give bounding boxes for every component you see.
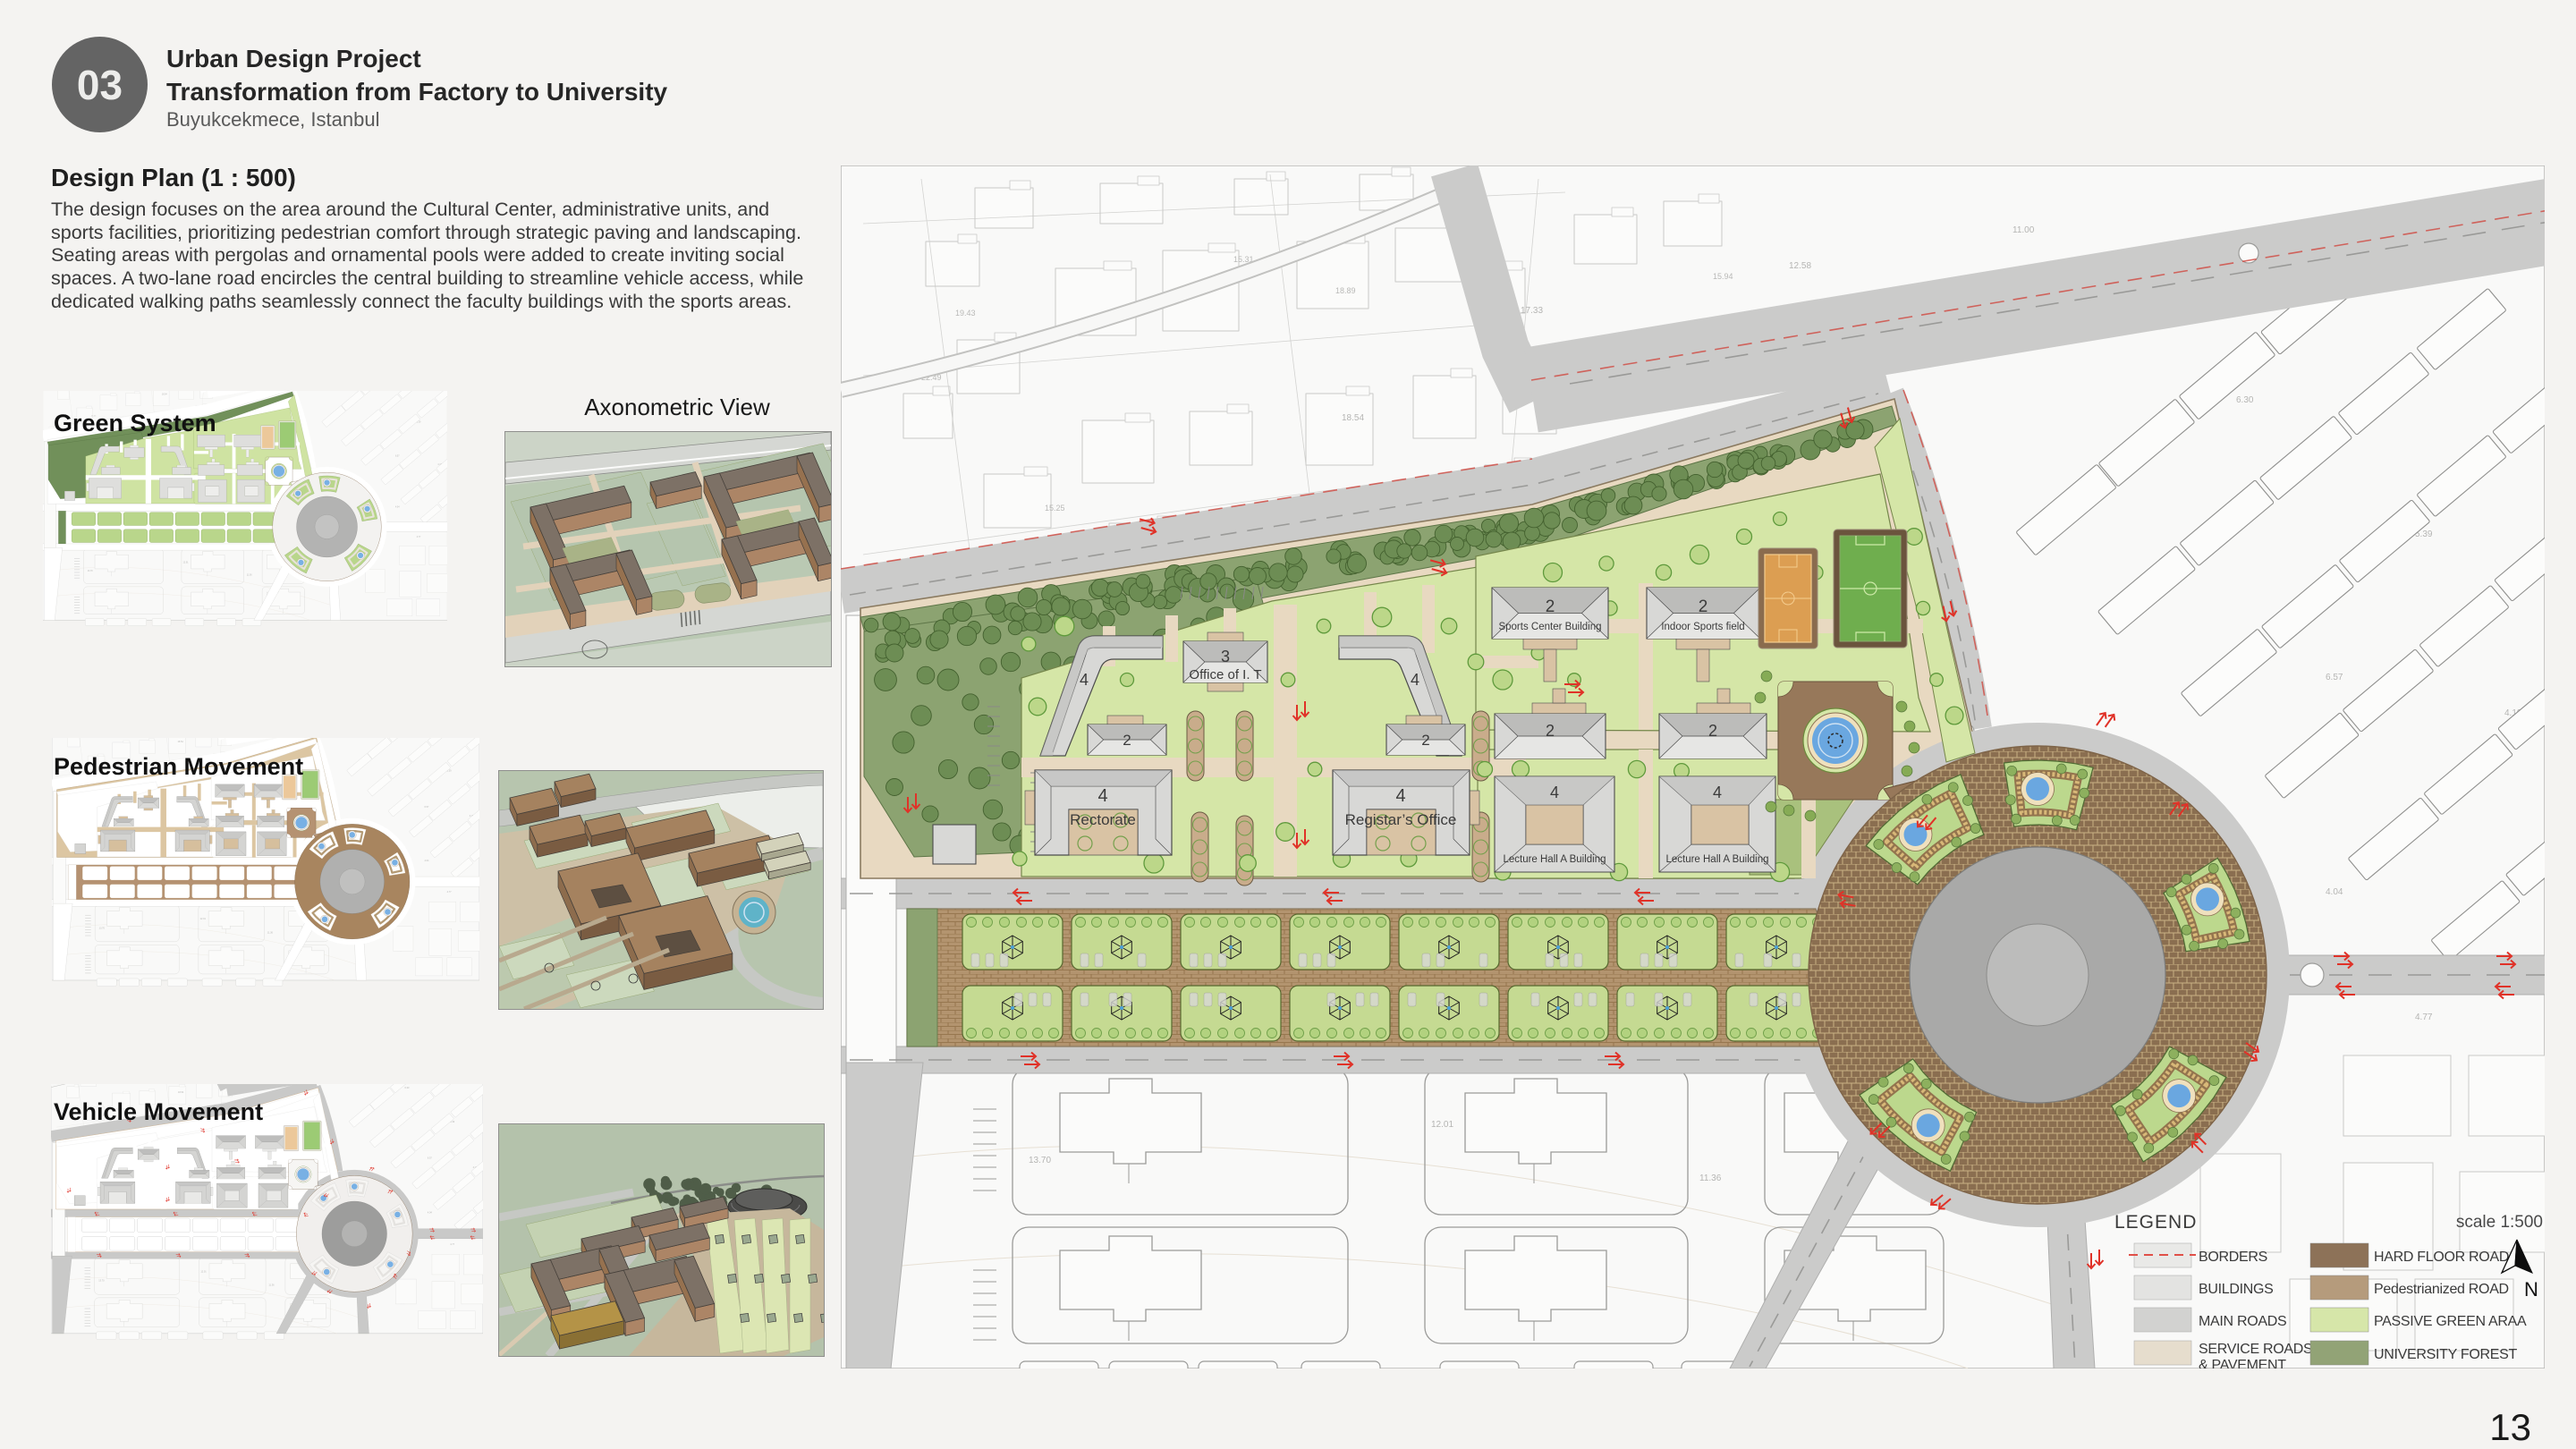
svg-text:18.54: 18.54: [178, 741, 184, 743]
svg-text:12.01: 12.01: [200, 918, 207, 920]
svg-text:6.30: 6.30: [374, 391, 378, 392]
svg-text:13.70: 13.70: [1029, 1156, 1051, 1165]
svg-text:4.04: 4.04: [395, 506, 400, 509]
svg-text:4.77: 4.77: [447, 891, 452, 894]
svg-text:18.54: 18.54: [1342, 413, 1364, 423]
svg-text:scale 1:500: scale 1:500: [2456, 1213, 2543, 1232]
svg-text:4: 4: [1550, 784, 1559, 801]
svg-text:UNIVERSITY FOREST: UNIVERSITY FOREST: [2374, 1347, 2517, 1362]
svg-text:19.43: 19.43: [955, 309, 976, 318]
svg-text:2: 2: [1546, 722, 1555, 740]
svg-text:4: 4: [1713, 784, 1722, 801]
svg-text:11.36: 11.36: [268, 1284, 275, 1287]
svg-text:4.04: 4.04: [428, 1212, 432, 1215]
svg-text:6.57: 6.57: [428, 1157, 432, 1160]
svg-text:& PAVEMENT: & PAVEMENT: [2199, 1358, 2286, 1368]
svg-text:12.58: 12.58: [1789, 261, 1811, 271]
svg-text:BORDERS: BORDERS: [2199, 1250, 2267, 1265]
svg-text:12.01: 12.01: [200, 1270, 207, 1273]
svg-text:PASSIVE GREEN ARAA: PASSIVE GREEN ARAA: [2374, 1314, 2527, 1329]
svg-text:6.30: 6.30: [2236, 395, 2254, 405]
svg-text:12.01: 12.01: [183, 561, 190, 563]
svg-text:11.36: 11.36: [267, 931, 274, 934]
svg-text:4.77: 4.77: [417, 536, 421, 538]
svg-text:6.57: 6.57: [395, 455, 400, 458]
svg-text:2: 2: [1699, 597, 1708, 616]
svg-text:Indoor Sports field: Indoor Sports field: [1661, 622, 1744, 632]
svg-text:Pedestrianized ROAD: Pedestrianized ROAD: [2374, 1282, 2509, 1297]
svg-text:2: 2: [1421, 732, 1429, 749]
svg-text:15.94: 15.94: [1713, 272, 1733, 281]
svg-text:Rectorate: Rectorate: [1070, 811, 1136, 828]
svg-text:13.70: 13.70: [99, 927, 106, 929]
svg-text:Sports Center Building: Sports Center Building: [1498, 622, 1601, 632]
svg-text:18.89: 18.89: [1335, 286, 1356, 295]
svg-text:2: 2: [1123, 732, 1131, 749]
svg-text:LEGEND: LEGEND: [2114, 1212, 2197, 1233]
svg-text:18.54: 18.54: [178, 1091, 184, 1094]
svg-text:SERVICE ROADS: SERVICE ROADS: [2199, 1342, 2312, 1357]
svg-text:4: 4: [1395, 786, 1405, 806]
svg-text:Registar’s Office: Registar’s Office: [1345, 811, 1457, 828]
svg-text:4: 4: [1097, 786, 1107, 806]
svg-text:11.36: 11.36: [1699, 1174, 1722, 1183]
svg-text:Office of I. T: Office of I. T: [1189, 667, 1261, 682]
svg-text:4.77: 4.77: [450, 1243, 454, 1246]
svg-text:4: 4: [1411, 671, 1419, 689]
svg-text:6.57: 6.57: [425, 806, 429, 809]
svg-text:4.77: 4.77: [2415, 1013, 2433, 1022]
svg-text:Lecture Hall A Building: Lecture Hall A Building: [1503, 854, 1606, 865]
svg-text:15.25: 15.25: [1045, 504, 1065, 513]
svg-text:6.30: 6.30: [402, 738, 406, 739]
svg-text:4.04: 4.04: [2326, 887, 2343, 897]
svg-text:2: 2: [1708, 722, 1717, 740]
svg-text:12.01: 12.01: [1431, 1120, 1453, 1130]
svg-text:11.36: 11.36: [247, 574, 252, 577]
svg-text:13.70: 13.70: [88, 570, 94, 572]
svg-text:17.33: 17.33: [1521, 306, 1543, 316]
svg-text:3: 3: [1221, 648, 1230, 665]
svg-text:BUILDINGS: BUILDINGS: [2199, 1282, 2274, 1297]
svg-text:2: 2: [1546, 597, 1555, 616]
svg-text:Lecture Hall A Building: Lecture Hall A Building: [1665, 854, 1768, 865]
svg-text:4: 4: [1080, 671, 1089, 689]
svg-text:13.70: 13.70: [98, 1280, 105, 1283]
svg-text:4.04: 4.04: [425, 860, 429, 862]
svg-text:HARD FLOOR ROAD: HARD FLOOR ROAD: [2374, 1250, 2509, 1265]
svg-text:6.30: 6.30: [405, 1087, 410, 1089]
svg-text:6.57: 6.57: [2326, 673, 2343, 682]
svg-text:MAIN ROADS: MAIN ROADS: [2199, 1314, 2286, 1329]
svg-text:11.00: 11.00: [2012, 225, 2035, 235]
svg-text:18.54: 18.54: [162, 394, 168, 396]
svg-text:N: N: [2524, 1278, 2538, 1301]
